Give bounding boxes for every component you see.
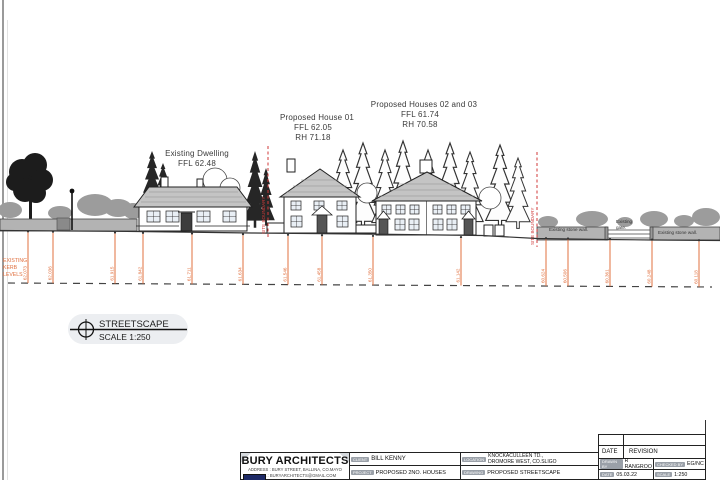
survey-point-dot (52, 231, 54, 233)
kerb-level-value: 61.350 (368, 268, 373, 282)
kerb-level-value: 60.624 (541, 269, 546, 283)
house01-rh: RH 71.18 (295, 133, 331, 142)
survey-point-dot (651, 239, 653, 241)
houses0203-rh: RH 70.58 (402, 120, 438, 129)
firm-logo (243, 474, 266, 480)
titleblock-location-cell: LOCATION KNOCKACULLEEN TD., DROMORE WEST… (460, 452, 599, 466)
survey-point-dot (142, 232, 144, 234)
grey-bushes-right (538, 208, 720, 228)
house01-ffl: FFL 62.05 (294, 123, 332, 132)
houses0203-title: Proposed Houses 02 and 03 (371, 100, 478, 109)
chimney (197, 179, 203, 187)
drawn-by-chip: DRAWN BY (600, 459, 623, 469)
existing-gate (605, 227, 653, 240)
bin-store (495, 225, 504, 236)
lamp-head (70, 189, 75, 194)
survey-point-dot (609, 238, 611, 240)
kerb-level-value: 61.915 (110, 266, 115, 280)
emblem-title: STREETSCAPE (99, 319, 169, 330)
kerb-level-value: 62.073 (23, 266, 28, 280)
kerb-level-value: 61.634 (238, 267, 243, 281)
utility-box (57, 218, 70, 230)
kerb-level-value: 61.711 (187, 267, 192, 281)
kerb-level-value: 60.118 (694, 270, 699, 284)
front-door (464, 219, 473, 235)
existing-stone-wall-label-right: Existing stone wall. (658, 230, 697, 235)
kerb-level-value: 60.506 (563, 269, 568, 283)
right-boundary-features: Existing stone wall. Existing gate. Exis… (537, 208, 720, 240)
titleblock-client-cell: CLIENT BILL KENNY (349, 452, 461, 466)
survey-point-dot (698, 239, 700, 241)
kerb-heading-2: KERB (3, 265, 18, 271)
chimney (420, 160, 432, 173)
scale-chip: SCALE (655, 472, 672, 477)
date-chip: DATE (600, 472, 614, 477)
kerb-level-value: 61.842 (138, 266, 143, 280)
checked-by-chip: CHECKED BY (655, 462, 685, 467)
existing-dwelling-ffl: FFL 62.48 (178, 159, 216, 168)
drawing-label-chip: DRAWING (462, 470, 485, 475)
front-door (379, 219, 388, 235)
garden-wall (356, 225, 378, 233)
existing-gate-label-1: Existing (616, 219, 633, 224)
date-value: 05.03.22 (616, 472, 637, 478)
titleblock-project-cell: PROJECT PROPOSED 2NO. HOUSES (349, 465, 461, 480)
date-header: DATE (602, 449, 618, 455)
survey-point-dot (460, 236, 462, 238)
project-label-chip: PROJECT (351, 470, 374, 475)
titleblock-drawing-cell: DRAWING PROPOSED STREETSCAPE (460, 465, 599, 480)
site-boundary-label-left: SITE BOUNDARY (261, 197, 266, 234)
location-label-chip: LOCATION (462, 457, 486, 462)
kerb-level-value: 61.142 (456, 268, 461, 282)
houses0203-ffl: FFL 61.74 (401, 110, 439, 119)
front-door (317, 215, 327, 233)
project-value: PROPOSED 2NO. HOUSES (376, 470, 446, 476)
drawing-value: PROPOSED STREETSCAPE (487, 470, 560, 476)
titleblock-firm-cell: BURY ARCHITECTS ADDRESS : BURY STREET, B… (240, 452, 350, 480)
house01-title: Proposed House 01 (280, 113, 354, 122)
drawing-title-emblem: STREETSCAPE SCALE 1:250 (68, 314, 188, 344)
firm-name: BURY ARCHITECTS (241, 455, 349, 467)
survey-point-dot (114, 231, 116, 233)
existing-stone-wall-label-left: Existing stone wall. (549, 227, 588, 232)
kerb-level-value: 62.036 (48, 266, 53, 280)
kerb-level-value: 61.458 (317, 267, 322, 281)
kerb-level-value: 60.361 (605, 269, 610, 283)
drawing-page: Existing stone wall. Existing gate. Exis… (0, 0, 720, 480)
survey-point-dot (321, 234, 323, 236)
garden-wall (267, 223, 284, 233)
bin-store (484, 225, 493, 236)
scale-value: 1:250 (674, 472, 687, 478)
streetscape-elevation-drawing: Existing stone wall. Existing gate. Exis… (0, 0, 720, 480)
existing-gate-label-2: gate. (616, 225, 626, 230)
checked-by-value: EG/NC (687, 461, 704, 467)
date-scale-row: DATE 05.03.22 SCALE 1:250 (598, 469, 706, 480)
front-door (181, 213, 192, 231)
kerb-level-value: 60.248 (647, 269, 652, 283)
chimney (161, 177, 168, 187)
chimney (287, 159, 295, 172)
survey-point-dot (287, 234, 289, 236)
kerb-level-value: 61.546 (283, 267, 288, 281)
survey-point-dot (27, 230, 29, 232)
revision-header: REVISION (629, 449, 658, 455)
survey-point-dot (567, 237, 569, 239)
survey-point-dot (242, 233, 244, 235)
location-line1: KNOCKACULLEEN TD., (488, 453, 543, 459)
client-value: BILL KENNY (371, 456, 405, 462)
site-boundary-label-right: SITE BOUNDARY (530, 208, 535, 245)
client-label-chip: CLIENT (351, 457, 369, 462)
revision-header-row: DATE REVISION (598, 445, 706, 459)
kerb-heading-1: EXISTING (3, 258, 27, 264)
kerb-heading-3: LEVELS (3, 272, 23, 278)
survey-point-dot (545, 237, 547, 239)
firm-address: ADDRESS : BURY STREET, BALLINA, CO.MAYO (241, 467, 349, 473)
survey-point-dot (191, 232, 193, 234)
survey-point-dot (372, 235, 374, 237)
emblem-scale: SCALE 1:250 (99, 332, 151, 342)
existing-dwelling-title: Existing Dwelling (165, 149, 229, 158)
